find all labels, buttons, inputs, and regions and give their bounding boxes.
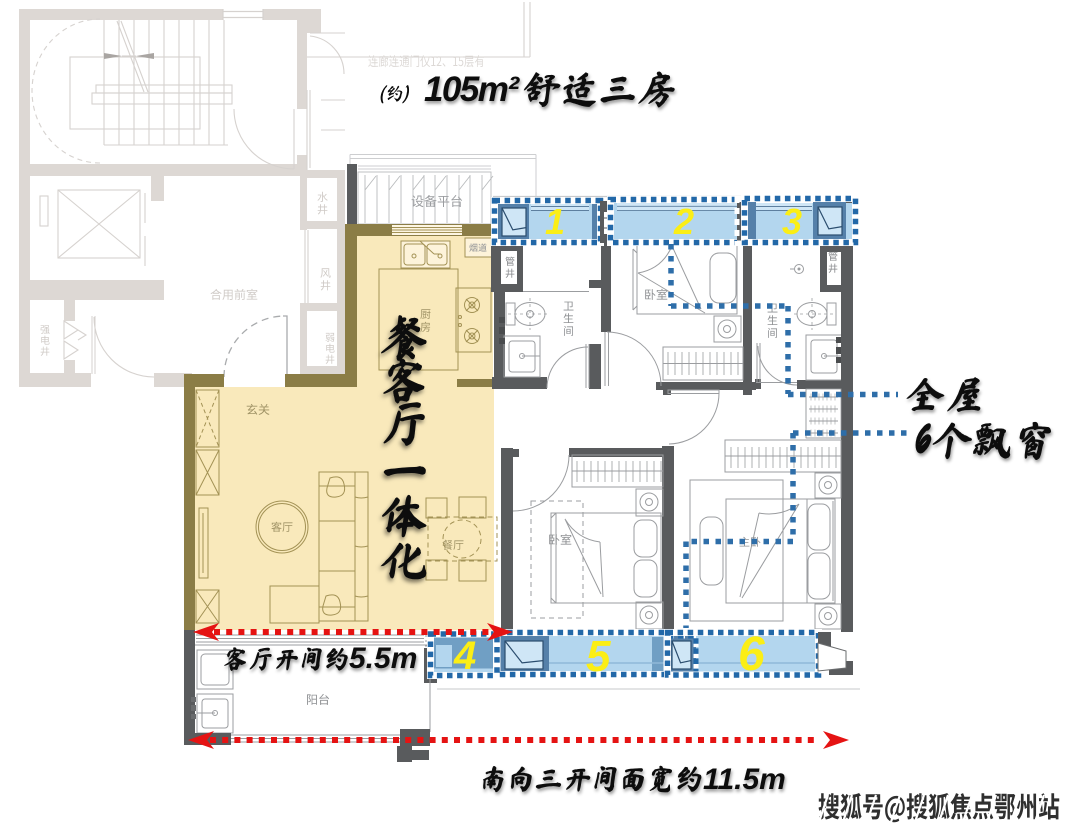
svg-text:5.5m: 5.5m — [349, 642, 417, 675]
svg-text:11.5m: 11.5m — [703, 763, 786, 796]
svg-text:6: 6 — [738, 628, 765, 681]
svg-text:3: 3 — [782, 201, 802, 242]
svg-text:2: 2 — [673, 201, 694, 242]
svg-text:1: 1 — [545, 201, 565, 242]
svg-text:105m²: 105m² — [424, 70, 520, 109]
svg-text:5: 5 — [586, 632, 611, 681]
svg-text:4: 4 — [453, 634, 476, 678]
